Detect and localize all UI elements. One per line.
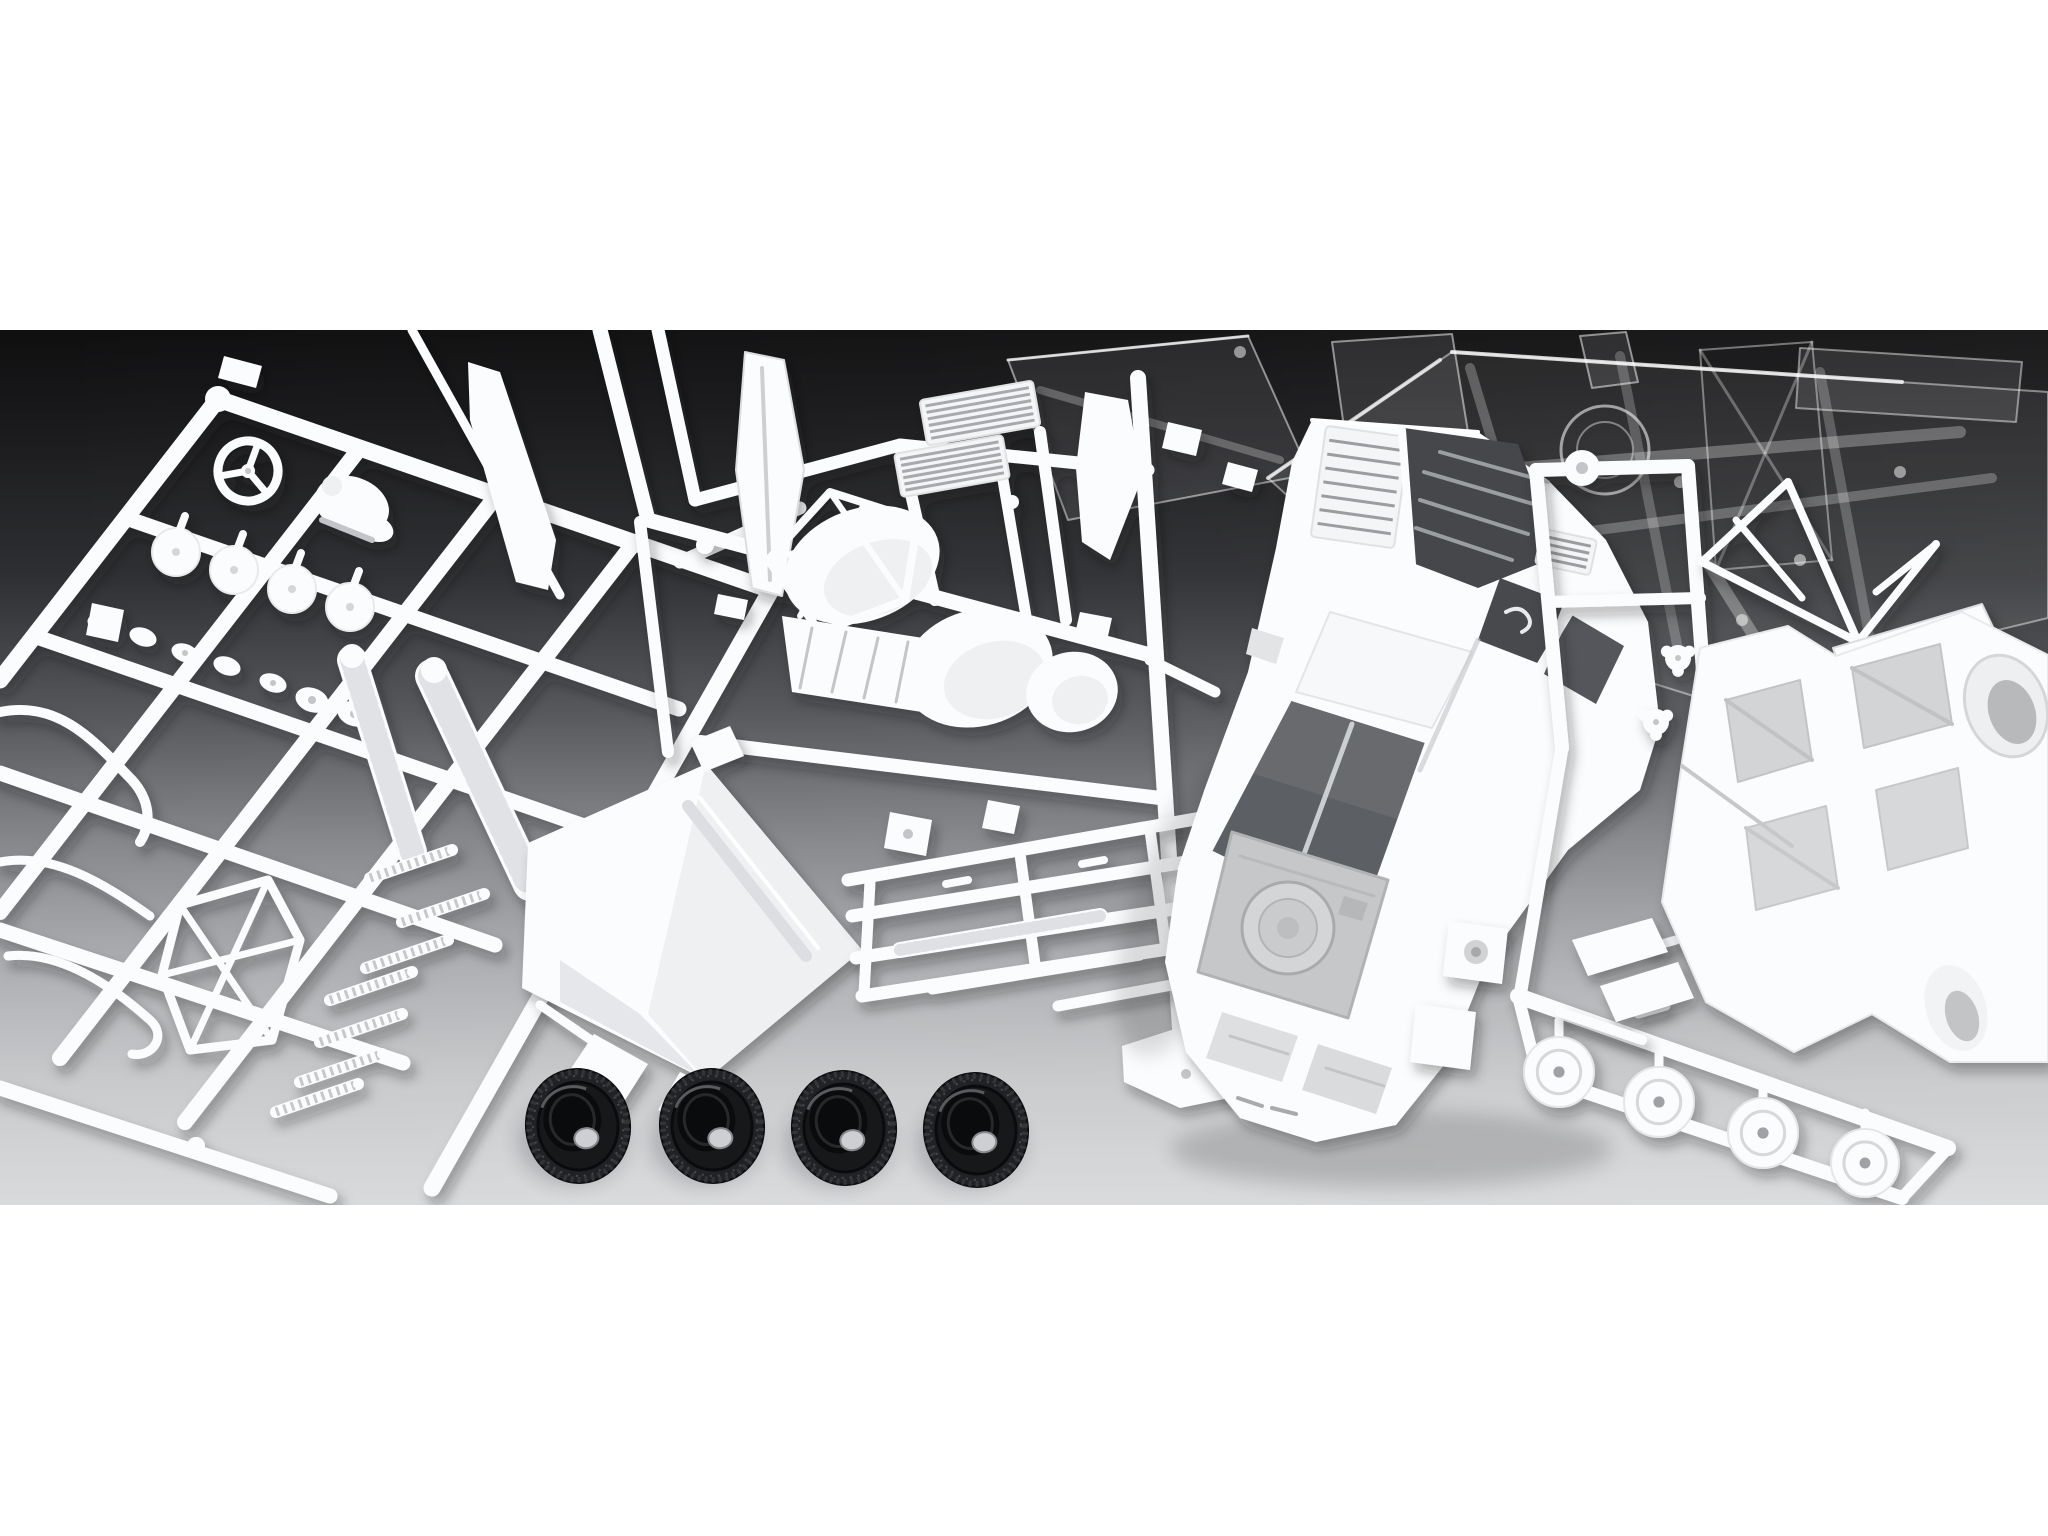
photo-canvas [0,0,2048,1536]
model-kit-product-photo [0,0,2048,1536]
louvered-vent [1311,426,1410,549]
